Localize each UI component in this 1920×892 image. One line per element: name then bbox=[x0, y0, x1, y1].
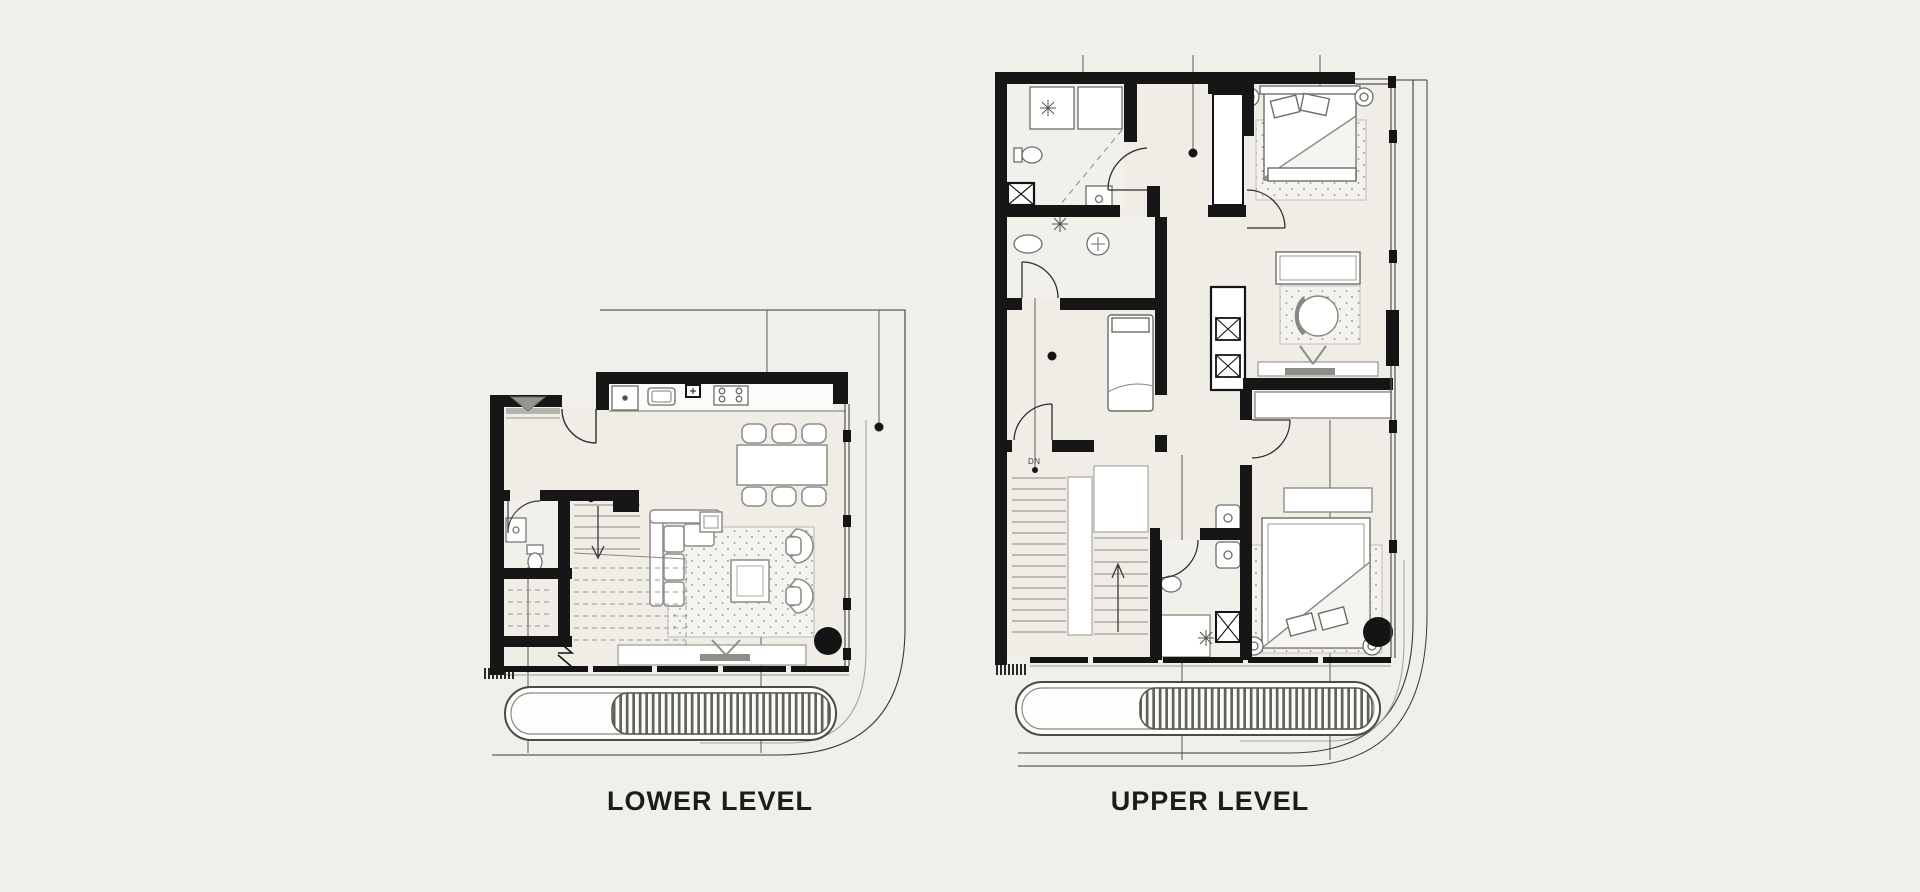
round-chair-icon bbox=[1298, 296, 1338, 336]
lower-level-label: LOWER LEVEL bbox=[560, 786, 860, 817]
shower-head-icon bbox=[1052, 216, 1068, 232]
ensuite-bathroom bbox=[1007, 216, 1155, 298]
dresser-icon bbox=[1284, 488, 1372, 512]
wardrobe-icon bbox=[1255, 392, 1391, 418]
dining-table bbox=[737, 445, 827, 485]
single-bed-icon bbox=[1108, 315, 1153, 411]
upper-level-label: UPPER LEVEL bbox=[1060, 786, 1360, 817]
coffee-table bbox=[731, 560, 769, 602]
dining-set bbox=[737, 424, 827, 506]
pendant-light-icon bbox=[1048, 352, 1057, 361]
dining-chair bbox=[742, 487, 766, 506]
louvre-screen bbox=[612, 693, 830, 734]
column-icon bbox=[1363, 617, 1393, 647]
cooktop-icon bbox=[714, 386, 748, 405]
dining-chair bbox=[742, 424, 766, 443]
lower-balcony bbox=[505, 687, 836, 740]
duct-shaft-icon bbox=[1216, 612, 1240, 642]
dining-chair bbox=[772, 424, 796, 443]
shower-head-icon bbox=[1198, 630, 1214, 646]
toilet-icon bbox=[1022, 147, 1042, 163]
dining-chair bbox=[802, 487, 826, 506]
upper-balcony bbox=[1016, 682, 1380, 735]
shower-head-icon bbox=[1040, 100, 1056, 116]
lower-level-plan bbox=[485, 310, 905, 755]
louvre-screen bbox=[1140, 688, 1372, 729]
floor-plans-canvas: DN bbox=[0, 0, 1920, 892]
duct-shaft-icon bbox=[1008, 183, 1034, 205]
tv-icon bbox=[1285, 368, 1335, 375]
dining-chair bbox=[772, 487, 796, 506]
wardrobe-icon bbox=[1213, 94, 1243, 205]
basin-icon bbox=[1014, 235, 1042, 253]
dining-chair bbox=[802, 424, 826, 443]
kitchen-counter bbox=[609, 384, 846, 411]
stair-direction-label: DN bbox=[1028, 457, 1041, 466]
desk-area bbox=[1276, 252, 1360, 344]
pendant-light-icon bbox=[1189, 149, 1198, 158]
toilet-icon bbox=[1014, 148, 1022, 162]
laundry-unit-icon bbox=[1078, 87, 1122, 129]
double-bed-icon bbox=[1262, 518, 1370, 648]
pendant-light-icon bbox=[875, 423, 884, 432]
desk-icon bbox=[1276, 252, 1360, 284]
floor-plan-drawing: DN bbox=[0, 0, 1920, 892]
upper-level-plan: DN bbox=[995, 55, 1427, 766]
column-icon bbox=[814, 627, 842, 655]
hatch-comb bbox=[997, 664, 1025, 675]
double-bed-icon bbox=[1260, 86, 1360, 181]
